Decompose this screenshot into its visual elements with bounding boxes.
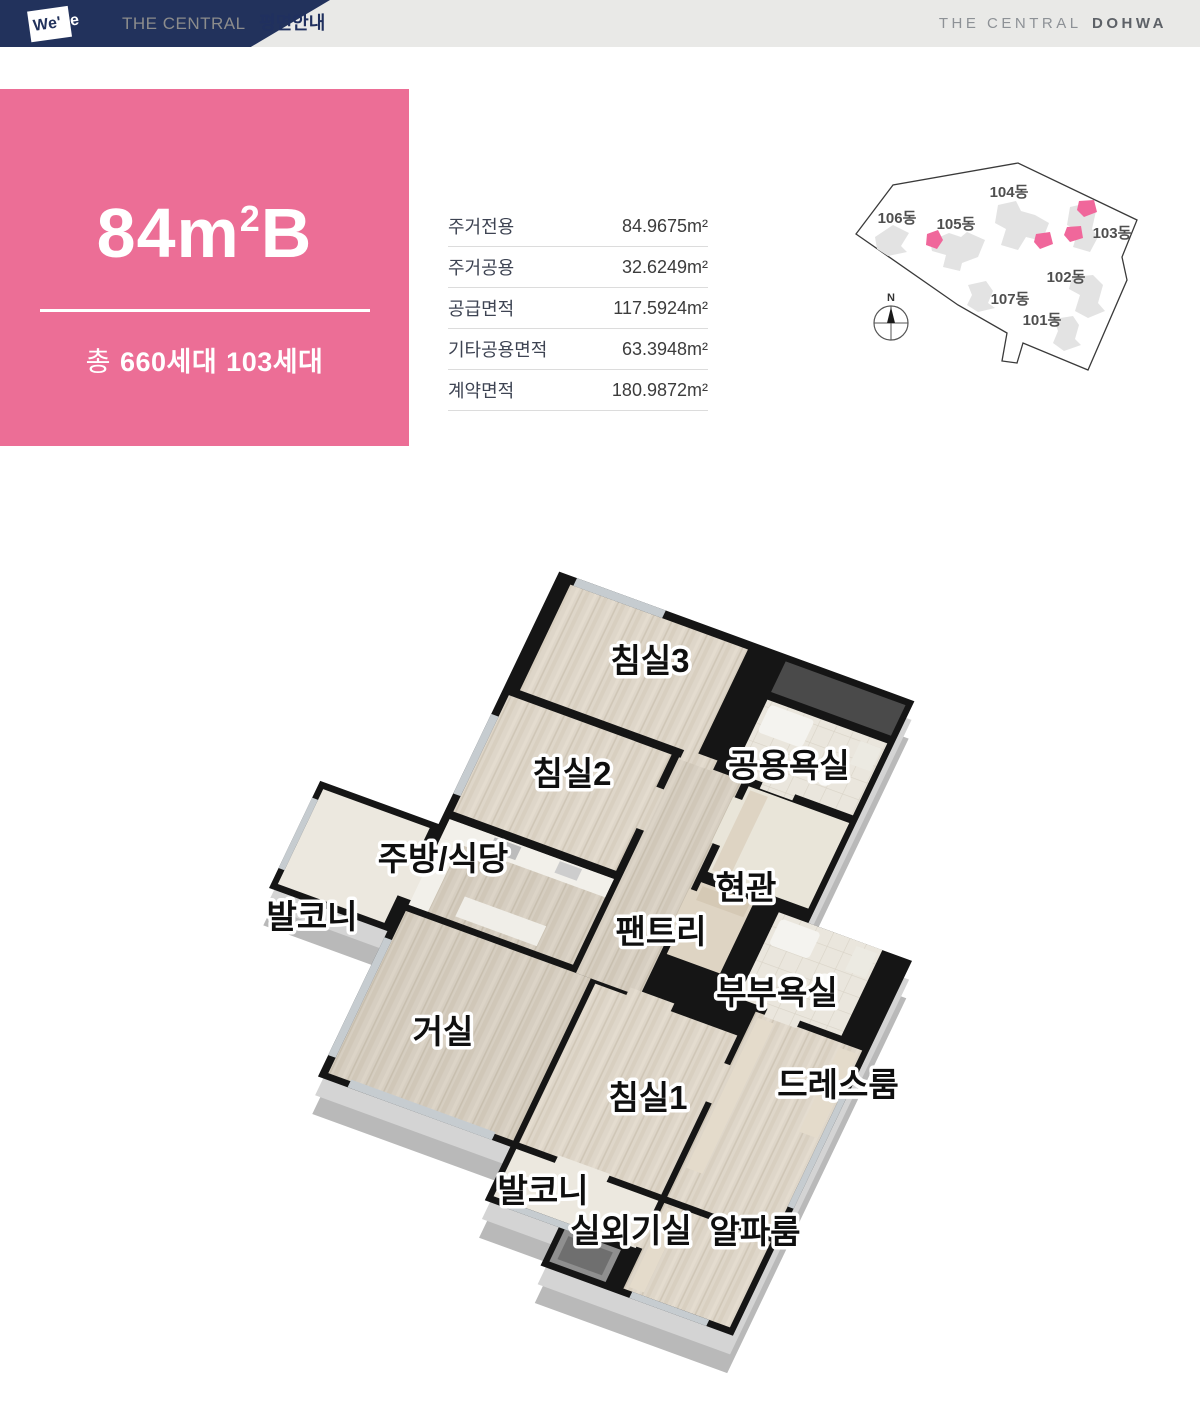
unit-sup: 2 — [240, 198, 261, 239]
table-row: 기타공용면적 63.3948m² — [448, 329, 708, 370]
table-row: 공급면적 117.5924m² — [448, 288, 708, 329]
unit-divider — [40, 309, 370, 312]
row-label: 주거공용 — [448, 254, 562, 280]
row-label: 계약면적 — [448, 377, 562, 403]
page-title-ko: 평면안내 — [259, 13, 325, 33]
household-count: 총660세대103세대 — [0, 349, 409, 376]
table-row: 계약면적 180.9872m² — [448, 370, 708, 411]
household-type-count: 103세대 — [226, 347, 323, 377]
table-row: 주거공용 32.6249m² — [448, 247, 708, 288]
room-label-pantry: 팬트리 — [615, 913, 706, 950]
page: We've THE CENTRAL 평면안내 THE CENTRAL DOHWA… — [0, 0, 1200, 1426]
building-label-102: 102동 — [1047, 269, 1086, 286]
site-plan-map: 104동 106동 105동 103동 102동 107동 101동 N — [848, 145, 1158, 395]
household-prefix: 총 — [86, 347, 111, 377]
building-label-103: 103동 — [1093, 225, 1132, 242]
project-title-bold: DOHWA — [1092, 15, 1167, 32]
room-label-alpha-room: 알파룸 — [709, 1213, 800, 1250]
row-value: 32.6249m² — [622, 257, 708, 278]
room-label-kitchen: 주방/식당 — [378, 840, 509, 877]
room-label-bathroom-shared: 공용욕실 — [728, 747, 849, 784]
building-label-105: 105동 — [937, 216, 976, 233]
room-label-living: 거실 — [413, 1013, 474, 1050]
row-label: 공급면적 — [448, 295, 562, 321]
room-label-bedroom1: 침실1 — [608, 1079, 687, 1116]
row-label: 기타공용면적 — [448, 336, 562, 362]
row-value: 180.9872m² — [612, 380, 708, 401]
unit-name: 84m2B — [0, 184, 409, 268]
page-title-en: THE CENTRAL — [122, 14, 246, 33]
room-label-balcony-left: 발코니 — [266, 898, 357, 935]
row-value: 63.3948m² — [622, 339, 708, 360]
row-label: 주거전용 — [448, 213, 562, 239]
project-title-main: THE CENTRAL — [939, 15, 1082, 32]
table-row: 주거전용 84.9675m² — [448, 206, 708, 247]
floor-plan-3d: 침실3 침실2 공용욕실 주방/식당 발코니 현관 팬트리 부부욕실 거실 침실… — [0, 470, 1200, 1426]
room-label-balcony-bottom: 발코니 — [497, 1172, 588, 1209]
row-value: 84.9675m² — [622, 216, 708, 237]
area-table: 주거전용 84.9675m² 주거공용 32.6249m² 공급면적 117.5… — [448, 206, 708, 411]
page-title: THE CENTRAL 평면안내 — [122, 0, 325, 47]
weve-logo: We've — [31, 4, 104, 40]
room-label-entrance: 현관 — [716, 869, 777, 906]
room-label-bedroom2: 침실2 — [532, 755, 611, 792]
compass-north-label: N — [887, 292, 895, 304]
building-label-104: 104동 — [990, 184, 1029, 201]
room-label-dressroom: 드레스룸 — [777, 1066, 898, 1103]
compass-icon: N — [874, 292, 908, 340]
building-label-107: 107동 — [991, 291, 1030, 308]
room-label-bedroom3: 침실3 — [610, 642, 689, 679]
header-bar: We've THE CENTRAL 평면안내 THE CENTRAL DOHWA — [0, 0, 1200, 47]
unit-panel: 84m2B 총660세대103세대 — [0, 89, 409, 446]
building-label-101: 101동 — [1023, 312, 1062, 329]
building-label-106: 106동 — [878, 210, 917, 227]
household-total: 660세대 — [120, 347, 217, 377]
row-value: 117.5924m² — [613, 298, 708, 319]
room-label-bathroom-master: 부부욕실 — [716, 974, 837, 1011]
project-title: THE CENTRAL DOHWA — [939, 0, 1167, 47]
room-label-ac-room: 실외기실 — [570, 1212, 691, 1249]
